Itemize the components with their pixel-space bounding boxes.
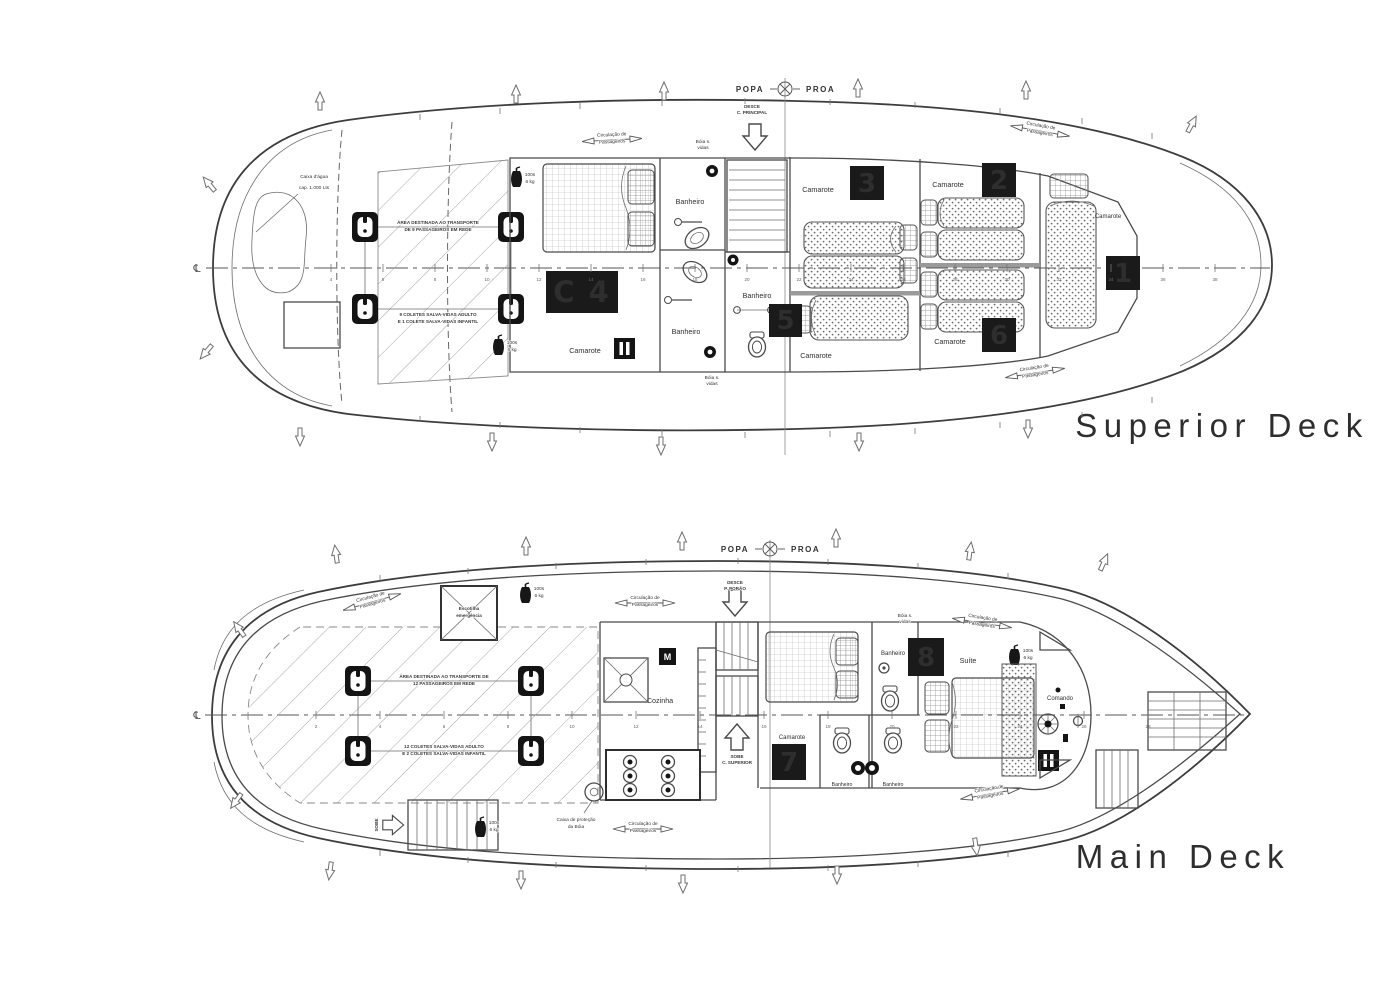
svg-text:9 COLETES SALVA-VIDAS ADULTO: 9 COLETES SALVA-VIDAS ADULTO — [399, 312, 477, 317]
station-label: 30 — [1004, 277, 1010, 282]
toilet-icon — [885, 728, 902, 753]
direction-arrow-icon — [296, 428, 305, 446]
svg-text:Banheiro: Banheiro — [743, 291, 772, 300]
cabin-badge-7: 7 — [772, 744, 806, 780]
life-vest-icon — [345, 736, 371, 766]
svg-text:100s: 100s — [507, 340, 518, 346]
bow-ladder — [1096, 692, 1226, 808]
direction-arrow-icon — [854, 79, 863, 97]
life-vest-icon — [352, 294, 378, 324]
direction-arrow-icon — [679, 875, 688, 893]
station-label: 8 — [507, 724, 510, 729]
corridor-band — [790, 291, 920, 296]
cabin-badge-8: 8 — [908, 638, 944, 676]
svg-text:8: 8 — [917, 643, 935, 673]
centerline-symbol: ℄ — [192, 710, 200, 722]
station-label: 16 — [640, 277, 646, 282]
direction-arrow-icon — [1096, 552, 1112, 572]
svg-text:C. PRINCIPAL: C. PRINCIPAL — [737, 110, 767, 115]
emergency-hatch: Escotilha emergência — [441, 586, 497, 640]
svg-text:100s: 100s — [525, 172, 536, 178]
station-label: 6 — [443, 724, 446, 729]
superior-deck-title: Superior Deck — [1075, 407, 1369, 444]
station-label: 20 — [744, 277, 750, 282]
svg-text:100s: 100s — [534, 586, 545, 592]
door-icon — [614, 338, 635, 359]
bathroom-main-bottom-right: Banheiro — [851, 728, 903, 788]
circulation-arrow: Circulação de Passageiros — [615, 595, 675, 608]
svg-text:Passageiros: Passageiros — [599, 138, 626, 145]
svg-text:Camarote: Camarote — [779, 735, 806, 741]
direction-arrow-icon — [200, 174, 218, 194]
fire-extinguisher-icon — [511, 167, 522, 187]
cabin-3: Camarote 3 — [802, 166, 917, 288]
cabin-c4: C 4 Camarote 100s 6 kg 100s 6 kg — [493, 164, 655, 359]
station-label: 14 — [588, 277, 594, 282]
stairs-down-arrow-icon — [743, 124, 767, 150]
cabin-2: Camarote 2 — [921, 163, 1024, 260]
station-label: 32 — [1056, 277, 1062, 282]
life-vest-icon — [498, 294, 524, 324]
bathroom-superior-2: Banheiro — [665, 257, 717, 358]
svg-text:Cozinha: Cozinha — [647, 696, 673, 705]
station-label: 18 — [825, 724, 831, 729]
life-vest-icon — [352, 212, 378, 242]
svg-text:SOBE: SOBE — [374, 818, 379, 831]
svg-text:Circulação de: Circulação de — [597, 131, 627, 139]
svg-text:emergência: emergência — [456, 613, 482, 618]
station-label: 18 — [692, 277, 698, 282]
svg-text:vidas: vidas — [706, 381, 718, 387]
cabin-badge-6: 6 — [982, 318, 1016, 352]
station-label: 22 — [953, 724, 959, 729]
svg-text:6 kg: 6 kg — [1023, 655, 1032, 661]
svg-text:5: 5 — [776, 306, 794, 336]
corridor-band — [920, 263, 1040, 268]
direction-arrow-icon — [197, 342, 215, 362]
station-label: 14 — [697, 724, 703, 729]
life-vest-icon — [518, 666, 544, 696]
stairs-arrow-icon — [383, 815, 404, 834]
station-label: 36 — [1160, 277, 1166, 282]
life-vest-icon — [518, 736, 544, 766]
main-deck-title: Main Deck — [1076, 838, 1290, 875]
station-label: 4 — [379, 724, 382, 729]
station-label: 20 — [889, 724, 895, 729]
svg-text:cap. 1.000 Lts: cap. 1.000 Lts — [299, 185, 330, 191]
direction-arrow-icon — [970, 837, 981, 856]
station-label: 12 — [633, 724, 639, 729]
station-label: 6 — [382, 277, 385, 282]
cabin-6: Camarote 6 — [921, 270, 1024, 352]
cabin-1: Camarote 1 — [1046, 174, 1140, 328]
direction-arrow-icon — [660, 82, 669, 100]
svg-text:Caixa d'água: Caixa d'água — [300, 174, 328, 180]
console — [1002, 664, 1036, 776]
stairs-superior: DESCE C. PRINCIPAL — [727, 104, 787, 252]
stairs-up-arrow-icon — [725, 724, 749, 750]
svg-text:6 kg: 6 kg — [489, 827, 498, 833]
circulation-arrow: Circulação de Passageiros — [582, 130, 643, 146]
bathroom-main-bottom-left: Banheiro — [832, 728, 853, 788]
direction-arrow-icon — [855, 433, 864, 451]
station-label: 24 — [848, 277, 854, 282]
direction-arrow-icon — [488, 433, 497, 451]
station-label: 16 — [761, 724, 767, 729]
station-label: 10 — [569, 724, 575, 729]
svg-text:Camarote: Camarote — [1095, 214, 1122, 220]
svg-text:Caixa de proteção: Caixa de proteção — [557, 817, 596, 823]
direction-arrow-icon — [1184, 114, 1200, 134]
station-label: 28 — [952, 277, 958, 282]
proa-label: PROA — [791, 545, 820, 554]
svg-text:Camarote: Camarote — [802, 185, 834, 194]
svg-text:Passageiros: Passageiros — [630, 828, 657, 834]
toilet-icon — [749, 332, 766, 357]
svg-text:ÁREA DESTINADA AO TRANSPORTE: ÁREA DESTINADA AO TRANSPORTE — [397, 219, 479, 225]
svg-text:6 kg: 6 kg — [525, 179, 534, 185]
cabin-badge-c4: C 4 — [546, 271, 618, 313]
svg-text:E 1 COLETE SALVA-VIDAS INFANTI: E 1 COLETE SALVA-VIDAS INFANTIL — [398, 319, 479, 324]
circulation-arrow: Circulação de Passageiros — [1004, 360, 1065, 382]
appliance-label: M — [664, 652, 672, 662]
direction-arrow-icon — [964, 541, 975, 560]
station-label: 26 — [900, 277, 906, 282]
station-label: 12 — [536, 277, 542, 282]
station-label: 28 — [1145, 724, 1151, 729]
bathroom-superior-1: Banheiro — [675, 165, 719, 253]
svg-text:Banheiro: Banheiro — [676, 197, 705, 206]
circulation-arrow: Circulação de Passageiros — [341, 586, 402, 615]
life-buoy-label: Bóia s. — [696, 139, 711, 145]
water-tank: Caixa d'água cap. 1.000 Lts — [252, 174, 340, 348]
svg-text:Suíte: Suíte — [960, 656, 977, 665]
popa-label: POPA — [721, 545, 749, 554]
direction-arrow-icon — [316, 92, 325, 110]
svg-text:100s: 100s — [489, 820, 500, 826]
stern-stairs: SOBE 100s 6 kg — [374, 800, 500, 850]
station-label: 8 — [434, 277, 437, 282]
svg-text:Comando: Comando — [1047, 696, 1074, 702]
direction-arrow-icon — [324, 861, 335, 880]
superior-deck-plan: ℄ POPA PROA Caixa d'água cap. 1.000 Lts … — [192, 78, 1368, 455]
svg-text:7: 7 — [780, 748, 798, 778]
station-label: 22 — [796, 277, 802, 282]
stove-icon — [606, 750, 700, 800]
svg-text:1: 1 — [1114, 259, 1132, 289]
svg-text:P. PORÃO: P. PORÃO — [724, 585, 746, 591]
direction-arrow-icon — [678, 532, 687, 550]
circulation-arrow: Circulação de Passageiros — [1010, 118, 1071, 141]
svg-text:vidas: vidas — [697, 145, 709, 151]
svg-text:12 COLETES SALVA-VIDAS ADULTO: 12 COLETES SALVA-VIDAS ADULTO — [404, 744, 484, 749]
station-label: 4 — [330, 277, 333, 282]
proa-label: PROA — [806, 85, 835, 94]
svg-text:Camarote: Camarote — [932, 180, 964, 189]
ship-wheel-icon — [1038, 714, 1058, 734]
life-buoy-label: Bóia s. — [898, 613, 913, 619]
station-label: 10 — [484, 277, 490, 282]
direction-arrow-icon — [517, 871, 526, 889]
cabin-badge-2: 2 — [982, 163, 1016, 197]
cabin-7: Camarote 7 — [766, 632, 858, 780]
svg-text:DESCE: DESCE — [744, 104, 760, 109]
direction-arrow-icon — [512, 85, 521, 103]
toilet-icon — [882, 686, 899, 711]
station-label: 26 — [1081, 724, 1087, 729]
station-label: 24 — [1017, 724, 1023, 729]
svg-text:Camarote: Camarote — [800, 351, 832, 360]
life-vest-icon — [498, 212, 524, 242]
sink-icon — [704, 346, 716, 358]
svg-text:Banheiro: Banheiro — [832, 782, 853, 788]
direction-arrow-icon — [833, 866, 842, 884]
svg-text:C. SUPERIOR: C. SUPERIOR — [722, 760, 753, 765]
station-label: 34 — [1108, 277, 1114, 282]
svg-text:Banheiro: Banheiro — [883, 782, 904, 788]
fire-extinguisher-icon — [1009, 645, 1020, 665]
svg-text:SOBE: SOBE — [730, 754, 743, 759]
life-buoy-label: Bóia s. — [705, 375, 720, 381]
svg-text:vidas: vidas — [899, 619, 911, 625]
direction-arrow-icon — [522, 537, 531, 555]
svg-text:Circulação de: Circulação de — [630, 595, 660, 601]
fire-extinguisher-icon — [520, 583, 531, 603]
centerline-symbol: ℄ — [192, 263, 200, 275]
svg-text:Camarote: Camarote — [934, 337, 966, 346]
bathroom-superior-3: Banheiro — [728, 255, 775, 358]
deck-plans-drawing: ℄ POPA PROA Caixa d'água cap. 1.000 Lts … — [0, 0, 1400, 1000]
svg-text:Banheiro: Banheiro — [672, 327, 701, 336]
cabin-badge-5: 5 — [769, 304, 802, 337]
svg-text:E 2 COLETES SALVA-VIDAS INFANT: E 2 COLETES SALVA-VIDAS INFANTIL — [402, 751, 486, 756]
circulation-arrow: Circulação de Passageiros — [613, 821, 673, 834]
direction-arrow-icon — [1024, 420, 1033, 438]
station-label: 2 — [315, 724, 318, 729]
svg-text:ÁREA DESTINADA AO TRANSPORTE D: ÁREA DESTINADA AO TRANSPORTE DE — [399, 673, 488, 679]
stairs-main: SOBE C. SUPERIOR DESCE P. PORÃO — [716, 580, 758, 765]
svg-text:DE 9 PASSAGEIROS EM REDE: DE 9 PASSAGEIROS EM REDE — [404, 227, 471, 232]
main-deck-plan: ℄ POPA PROA ÁREA DESTINADA AO TRANSPORTE… — [192, 540, 1290, 875]
station-label: 38 — [1212, 277, 1218, 282]
svg-text:3: 3 — [858, 169, 876, 199]
cabin-badge-3: 3 — [850, 166, 884, 200]
svg-text:Escotilha: Escotilha — [459, 606, 480, 611]
direction-arrow-icon — [832, 529, 841, 547]
circulation-arrow: Circulação de Passageiros — [959, 781, 1020, 804]
hammock-area-main: ÁREA DESTINADA AO TRANSPORTE DE 12 PASSA… — [248, 627, 598, 803]
direction-arrow-icon — [330, 544, 341, 563]
svg-text:6 kg: 6 kg — [534, 593, 543, 599]
svg-text:100s: 100s — [1023, 648, 1034, 654]
direction-arrow-icon — [1022, 81, 1031, 99]
svg-text:6: 6 — [990, 321, 1008, 351]
svg-text:Passageiros: Passageiros — [632, 602, 659, 608]
svg-text:12 PASSAGEIROS EM REDE: 12 PASSAGEIROS EM REDE — [413, 681, 475, 686]
svg-text:Banheiro: Banheiro — [881, 651, 906, 657]
cabin-badge-1: 1 — [1106, 256, 1140, 290]
stairs-down-arrow-icon — [723, 590, 747, 616]
svg-text:da Bóia: da Bóia — [568, 824, 585, 830]
popa-label: POPA — [736, 85, 764, 94]
sink-icon — [706, 165, 718, 177]
toilet-icon — [834, 728, 851, 753]
cabin-label: Camarote — [569, 346, 601, 355]
life-vest-icon — [345, 666, 371, 696]
svg-text:2: 2 — [990, 166, 1008, 196]
svg-text:DESCE: DESCE — [727, 580, 743, 585]
bathroom-main-top: Banheiro — [879, 651, 906, 711]
svg-text:6 kg: 6 kg — [507, 347, 516, 353]
direction-arrow-icon — [657, 437, 666, 455]
svg-text:Circulação de: Circulação de — [628, 821, 658, 827]
svg-text:C 4: C 4 — [553, 275, 611, 309]
